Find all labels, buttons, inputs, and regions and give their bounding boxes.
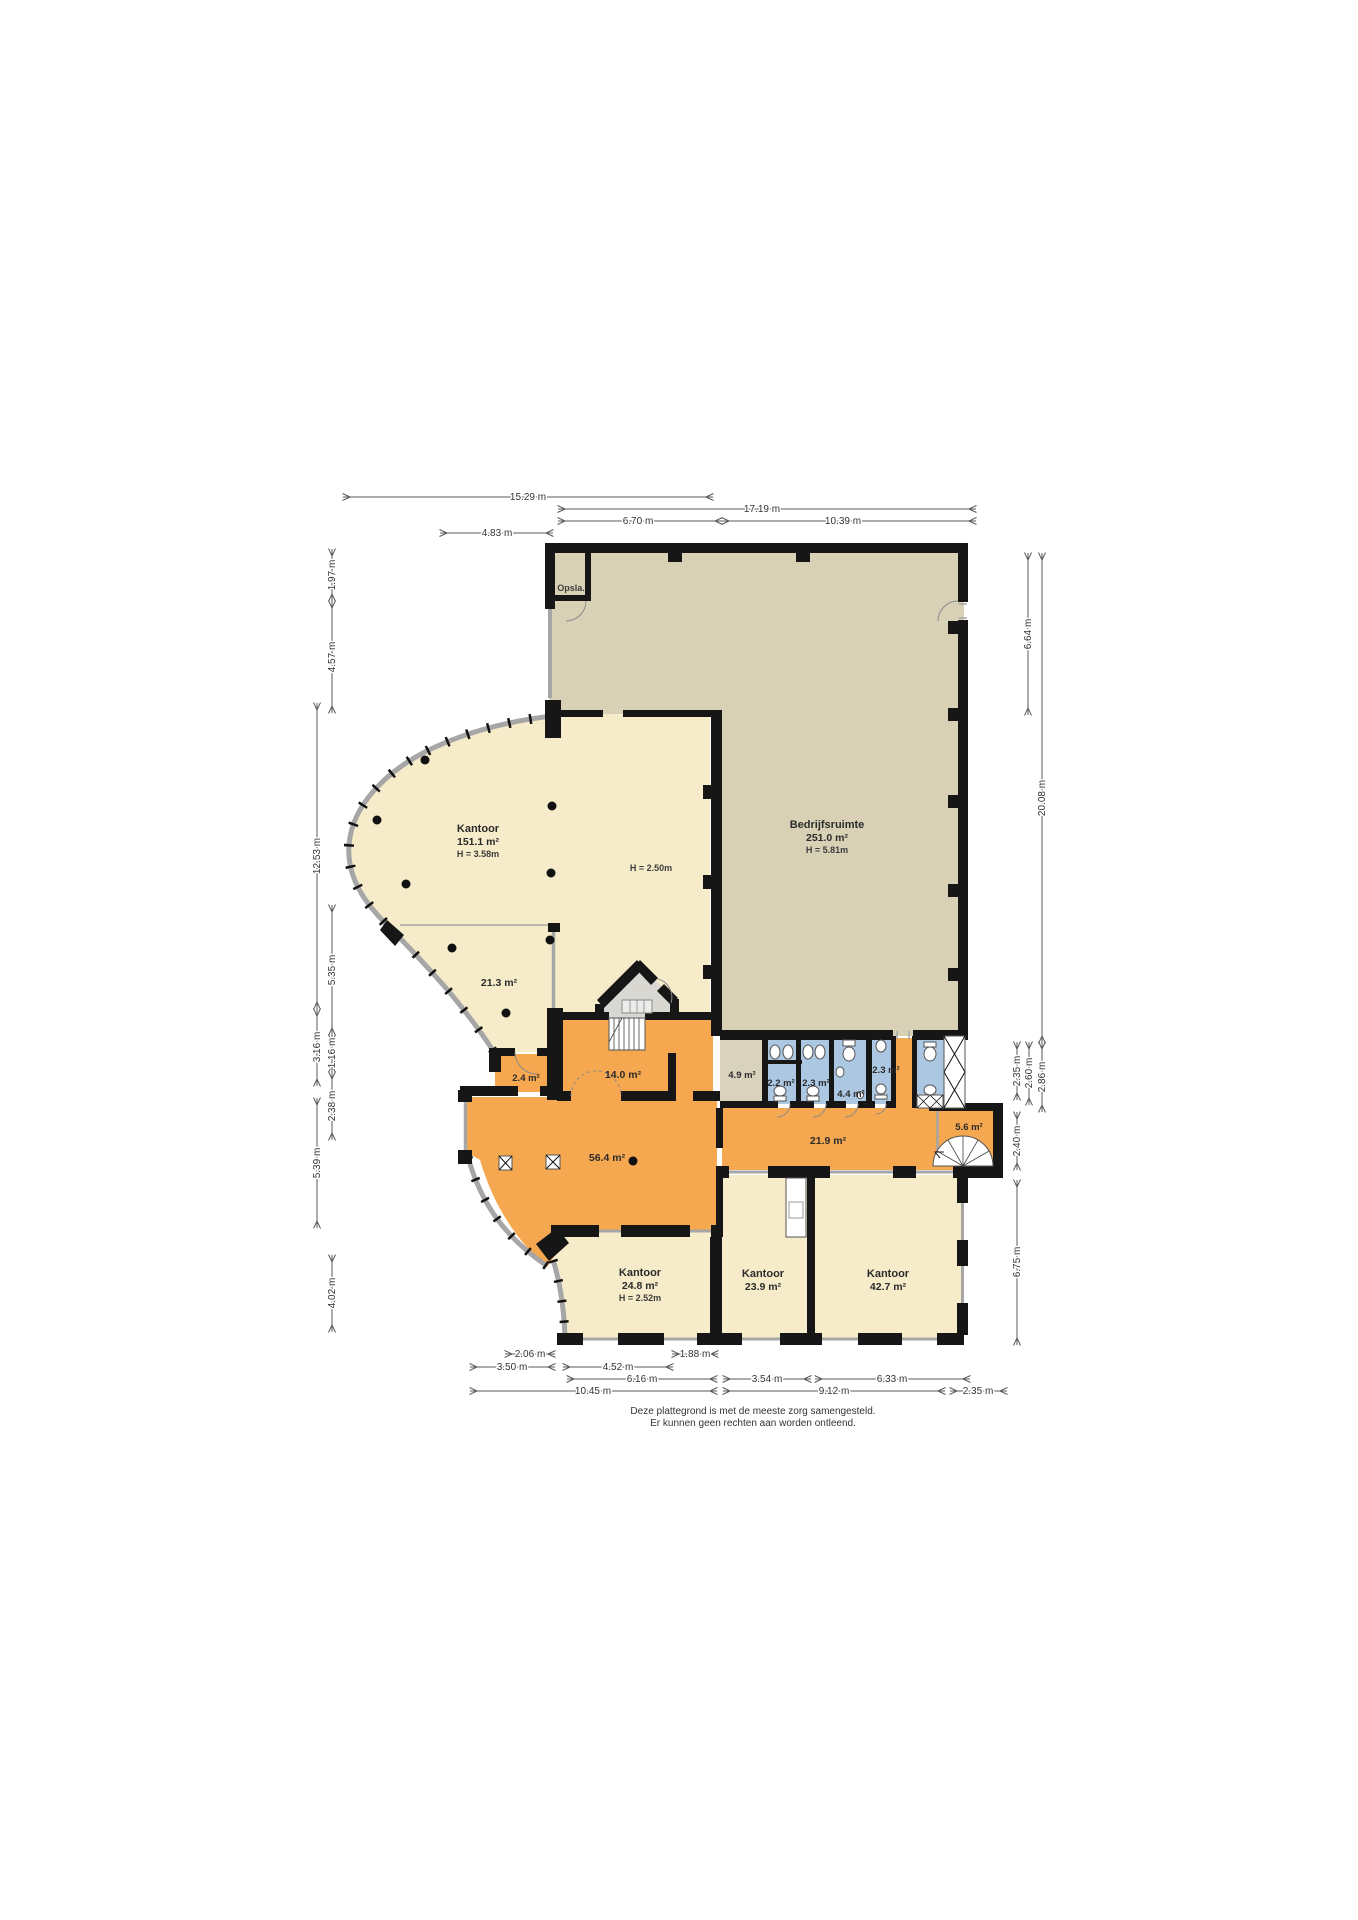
disclaimer-line1: Deze plattegrond is met de meeste zorg s… [630,1406,875,1417]
room-label-2-4: 2.4 m² [512,1073,539,1084]
room-label-56-4: 56.4 m² [589,1152,626,1164]
room-label-2-3b: 2.3 m² [872,1065,899,1076]
room-label-5-6: 5.6 m² [955,1122,982,1133]
room-label-4-9: 4.9 m² [728,1070,755,1081]
dim-right-2-40: 2.40 m [1012,1126,1023,1157]
dim-left-12-53: 12.53 m [312,838,323,874]
doormat [622,1000,652,1013]
kantoor-42-7-floor [813,1175,963,1338]
room-label-kantoor-main-height: H = 3.58m [457,849,499,859]
dim-bottom-3-50: 3.50 m [497,1362,528,1373]
room-fills [349,549,995,1340]
dim-top-4-83: 4.83 m [482,528,513,539]
dim-top-15-29: 15.29 m [510,492,546,503]
dim-left-2-38: 2.38 m [327,1091,338,1122]
room-label-21-3: 21.3 m² [481,977,518,989]
dim-left-4-57: 4.57 m [327,642,338,673]
room-label-bedrijfsruimte-name: Bedrijfsruimte [790,819,865,831]
dim-right-6-75: 6.75 m [1012,1247,1023,1278]
dim-bottom-1-88: 1.88 m [680,1349,711,1360]
dim-bottom-2-35: 2.35 m [963,1386,994,1397]
room-label-kantoor-main-area: 151.1 m² [457,836,500,848]
room-label-kantoor-42-7-area: 42.7 m² [870,1281,907,1293]
dim-right-2-86: 2.86 m [1037,1062,1048,1093]
room-label-4-4: 4.4 m² [837,1089,864,1100]
dim-right-2-35: 2.35 m [1012,1056,1023,1087]
dim-top-10-39: 10.39 m [825,516,861,527]
room-label-bedrijfsruimte-area: 251.0 m² [806,832,849,844]
dim-left-5-35: 5.35 m [327,955,338,986]
staircase [609,1018,645,1050]
room-label-kantoor-23-9-area: 23.9 m² [745,1281,782,1293]
dim-bottom-6-33: 6.33 m [877,1374,908,1385]
room-label-bedrijfsruimte-height: H = 5.81m [806,845,848,855]
dim-bottom-6-16: 6.16 m [627,1374,658,1385]
dim-right-2-60: 2.60 m [1024,1058,1035,1089]
dim-bottom-10-45: 10.45 m [575,1386,611,1397]
room-label-kantoor-23-9-name: Kantoor [742,1268,785,1280]
dim-bottom-9-12: 9.12 m [819,1386,850,1397]
dim-bottom-3-54: 3.54 m [752,1374,783,1385]
dim-left-5-39: 5.39 m [312,1148,323,1179]
floorplan-page: Opsla. Kantoor 151.1 m² H = 3.58m H = 2.… [0,0,1358,1920]
dim-bottom-4-52: 4.52 m [603,1362,634,1373]
room-label-kantoor-main-name: Kantoor [457,823,500,835]
room-label-opslag: Opsla. [557,583,585,593]
dim-left-1-16: 1.16 m [327,1038,338,1069]
dim-right-20-08: 20.08 m [1037,780,1048,816]
room-label-kantoor-24-8-height: H = 2.52m [619,1293,661,1303]
dim-left-1-97: 1.97 m [327,560,338,591]
dim-top-17-19: 17.19 m [744,504,780,515]
room-label-kantoor-42-7-name: Kantoor [867,1268,910,1280]
room-label-2-2: 2.2 m² [767,1078,794,1089]
dim-left-3-16: 3.16 m [312,1032,323,1063]
room-label-kantoor-24-8-area: 24.8 m² [622,1280,659,1292]
floorplan-svg: Opsla. Kantoor 151.1 m² H = 3.58m H = 2.… [0,0,1358,1920]
dim-right-6-64: 6.64 m [1023,619,1034,650]
room-label-21-9: 21.9 m² [810,1135,847,1147]
room-label-height-note: H = 2.50m [630,863,672,873]
room-label-2-3a: 2.3 m² [802,1078,829,1089]
disclaimer: Deze plattegrond is met de meeste zorg s… [630,1406,875,1429]
room-label-14-0: 14.0 m² [605,1069,642,1081]
dim-bottom-2-06: 2.06 m [515,1349,546,1360]
disclaimer-line2: Er kunnen geen rechten aan worden ontlee… [650,1418,856,1429]
dim-left-4-02: 4.02 m [327,1278,338,1309]
dim-top-6-70: 6.70 m [623,516,654,527]
room-label-kantoor-24-8-name: Kantoor [619,1267,662,1279]
